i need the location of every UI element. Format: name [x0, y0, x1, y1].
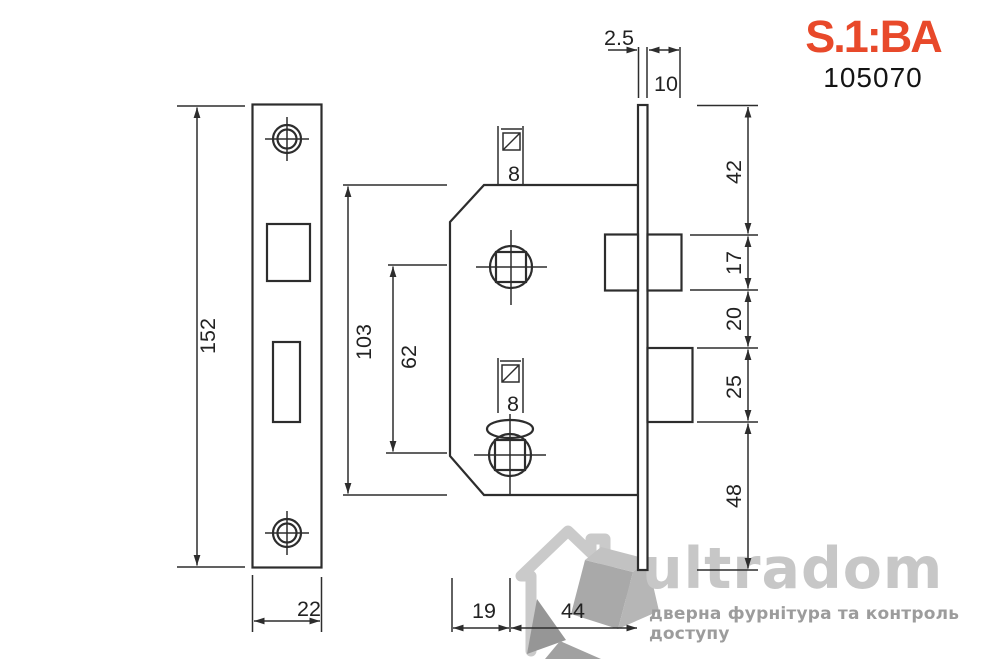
brand-logo-text: S.1:BA	[793, 14, 953, 59]
brand-logo: S.1:BA 105070	[793, 14, 953, 94]
dim-deadbolt-height: 25	[722, 375, 746, 399]
dim-square-top: 8	[508, 162, 520, 186]
dim-body-height: 103	[352, 324, 376, 360]
dim-hole-spacing: 62	[397, 345, 421, 369]
dim-edge-to-spindle: 19	[472, 599, 496, 623]
deadbolt	[648, 348, 693, 422]
dim-backset: 44	[561, 599, 585, 623]
faceplate-front-view	[253, 105, 322, 568]
dim-plate-thickness: 2.5	[604, 26, 634, 50]
square-symbol-top	[501, 129, 522, 150]
lock-body-view	[450, 185, 638, 495]
dim-latch-height: 17	[722, 251, 746, 275]
dim-latch-to-deadbolt: 20	[722, 307, 746, 331]
lock-dimension-drawing: ultradom дверна фурнітура та контроль до…	[0, 0, 990, 660]
latch-bolt	[648, 235, 682, 291]
dim-faceplate-height: 152	[196, 318, 220, 354]
dim-square-bottom: 8	[507, 392, 519, 416]
dim-top-to-latch: 42	[722, 160, 746, 184]
dim-faceplate-width: 22	[297, 597, 321, 621]
dim-deadbolt-to-bottom: 48	[722, 484, 746, 508]
technical-drawing: 152 22 103 62 8 8 19 44 2.5 10 42 17 20 …	[0, 0, 990, 660]
dim-latch-protrusion: 10	[654, 72, 678, 96]
product-code: 105070	[793, 62, 953, 94]
latch-bolt-inner	[605, 235, 638, 291]
